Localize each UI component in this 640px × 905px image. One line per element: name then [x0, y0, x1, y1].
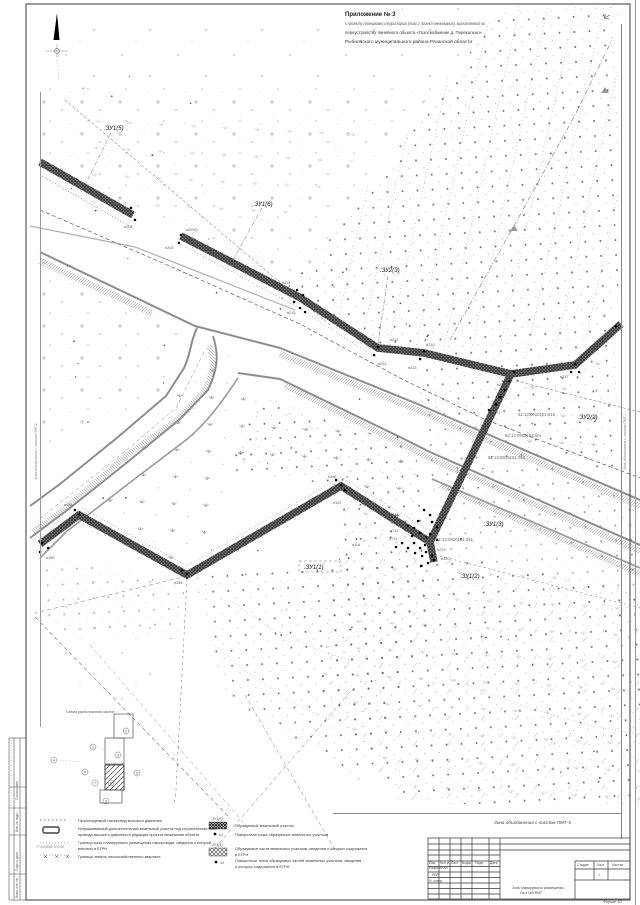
- svg-text:н202: н202: [165, 246, 173, 250]
- svg-text:62:13:0910101:б/н: 62:13:0910101:б/н: [505, 433, 542, 438]
- svg-text::ЗУ1(5): :ЗУ1(5): [211, 817, 223, 821]
- svg-text:9: 9: [105, 799, 107, 803]
- svg-text:н203: н203: [186, 228, 194, 232]
- svg-text:н212: н212: [378, 362, 386, 366]
- svg-text:Поворотные точки образуемых ча: Поворотные точки образуемых частей земел…: [235, 858, 361, 863]
- svg-text:н204: н204: [124, 225, 132, 229]
- svg-text:Поворотная точка образуемых зе: Поворотная точка образуемых земельных уч…: [235, 832, 328, 837]
- svg-text:н150: н150: [46, 556, 54, 560]
- svg-text:н217: н217: [560, 375, 568, 379]
- svg-text:7: 7: [94, 781, 96, 785]
- svg-text::ЗУ2(3): :ЗУ2(3): [380, 268, 400, 274]
- svg-text:Формат А1: Формат А1: [603, 900, 622, 904]
- svg-text::ЗУ1(2): :ЗУ1(2): [460, 574, 480, 580]
- svg-text::ЗУ2(2): :ЗУ2(2): [578, 415, 598, 421]
- svg-text:н216: н216: [497, 383, 505, 387]
- svg-text:н210: н210: [426, 343, 434, 347]
- svg-text::ЗУ1(1): :ЗУ1(1): [211, 843, 223, 847]
- svg-text:Зона объединения с листом ПМТ-: Зона объединения с листом ПМТ-2: [34, 423, 38, 480]
- svg-text:н1: н1: [219, 833, 223, 837]
- svg-text:н215: н215: [287, 311, 295, 315]
- svg-text:н205: н205: [112, 202, 120, 206]
- svg-text:н218: н218: [604, 333, 612, 337]
- svg-text::ЗУ1(6): :ЗУ1(6): [253, 202, 273, 208]
- svg-text:н219: н219: [437, 548, 445, 552]
- svg-text:Границы земель лесохозяйственн: Границы земель лесохозяйственного кварта…: [78, 855, 161, 859]
- svg-text:4: 4: [53, 758, 55, 762]
- svg-text::ЗУ1(5): :ЗУ1(5): [104, 126, 124, 132]
- svg-text::ЗУ1(1): :ЗУ1(1): [304, 565, 324, 571]
- svg-text:62:13:0910101:253: 62:13:0910101:253: [488, 455, 526, 460]
- svg-text:н214: н214: [282, 281, 290, 285]
- svg-text:н1: н1: [220, 861, 224, 865]
- svg-text:к проекту планировки территори: к проекту планировки территории (том 2 п…: [345, 21, 486, 26]
- svg-text:Взам. инв. №: Взам. инв. №: [15, 878, 19, 898]
- svg-text:1: 1: [598, 873, 600, 877]
- svg-text:62:13:0910101:251: 62:13:0910101:251: [436, 537, 474, 542]
- svg-text:Лист: Лист: [597, 863, 605, 867]
- svg-text:62:13:0910101:616: 62:13:0910101:616: [518, 412, 556, 417]
- svg-text:н714: н714: [390, 513, 398, 517]
- svg-text:н712: н712: [390, 529, 398, 533]
- svg-text:3: 3: [117, 753, 119, 757]
- svg-text:6: 6: [136, 771, 138, 775]
- svg-text:2: 2: [92, 745, 94, 749]
- svg-text:Стадия: Стадия: [577, 863, 589, 867]
- svg-text:Дата: Дата: [490, 861, 498, 865]
- svg-text:Листов: Листов: [612, 863, 623, 867]
- svg-text:№док: №док: [462, 861, 472, 865]
- svg-text:н211: н211: [390, 338, 398, 342]
- svg-text:Проектируемый газопровод высок: Проектируемый газопровод высокого давлен…: [78, 819, 162, 823]
- svg-text:Инв. № подл.: Инв. № подл.: [15, 812, 19, 832]
- svg-text:н154: н154: [64, 503, 72, 507]
- svg-text:н155: н155: [174, 581, 182, 585]
- svg-text:1: 1: [125, 729, 127, 733]
- svg-text:Разработал: Разработал: [429, 866, 447, 870]
- svg-text:Лист: Лист: [451, 861, 459, 865]
- svg-text:Зона объединения с листом ПМТ-: Зона объединения с листом ПМТ-5: [494, 820, 571, 825]
- svg-text:н711: н711: [389, 537, 397, 541]
- svg-text:н220: н220: [441, 557, 449, 561]
- svg-text:Испрашиваемый дополнительный з: Испрашиваемый дополнительный земельный у…: [78, 827, 218, 831]
- svg-text:н713: н713: [391, 521, 399, 525]
- svg-text:Изм: Изм: [429, 861, 436, 865]
- svg-text:в ЕГРН: в ЕГРН: [235, 852, 248, 857]
- svg-text:внесены в ЕГРН: внесены в ЕГРН: [78, 847, 107, 851]
- svg-text:Подп. и дата: Подп. и дата: [15, 852, 19, 871]
- svg-text:переустройству линейного объек: переустройству линейного объекта «Газосн…: [345, 29, 482, 36]
- svg-text:5: 5: [84, 770, 86, 774]
- svg-text:о которых содержатся в ЕГРН: о которых содержатся в ЕГРН: [235, 864, 290, 869]
- svg-text:Граница зоны планируемого разм: Граница зоны планируемого размещения газ…: [78, 841, 211, 845]
- svg-text:+7.0000000 X=0.00: +7.0000000 X=0.00: [36, 845, 64, 849]
- svg-text:Рыбновского муниципального рай: Рыбновского муниципального района Рязанс…: [345, 38, 472, 45]
- svg-text:н157: н157: [333, 501, 341, 505]
- svg-text:Зона планируемого размещения: Зона планируемого размещения: [512, 886, 564, 890]
- svg-text:Схема расположения листов: Схема расположения листов: [66, 710, 114, 714]
- svg-text:Подп.: Подп.: [475, 861, 484, 865]
- svg-text:Кол.уч: Кол.уч: [440, 861, 450, 865]
- svg-text:н156: н156: [328, 475, 336, 479]
- svg-text:Лист №5 ПМТ: Лист №5 ПМТ: [520, 891, 542, 895]
- svg-text:Образуемые части земельных уча: Образуемые части земельных участков, све…: [235, 846, 367, 851]
- svg-text:Приложение № 3: Приложение № 3: [345, 11, 396, 18]
- svg-text:Образуемый земельный участок: Образуемый земельный участок: [235, 823, 294, 828]
- svg-text:Согласовано: Согласовано: [15, 781, 19, 800]
- svg-text:8: 8: [110, 781, 112, 785]
- svg-text:Н. контр.: Н. контр.: [429, 879, 443, 883]
- svg-text:н213: н213: [408, 366, 416, 370]
- svg-text::ЗУ1(3): :ЗУ1(3): [484, 522, 504, 528]
- svg-text:Зона объединения с листом ПМТ-: Зона объединения с листом ПМТ-1: [623, 413, 627, 470]
- svg-text:н118: н118: [352, 543, 360, 547]
- svg-text:ЛБР: ЛБР: [432, 873, 439, 877]
- svg-text:провода высокого давления в ре: провода высокого давления в редакции про…: [78, 833, 200, 837]
